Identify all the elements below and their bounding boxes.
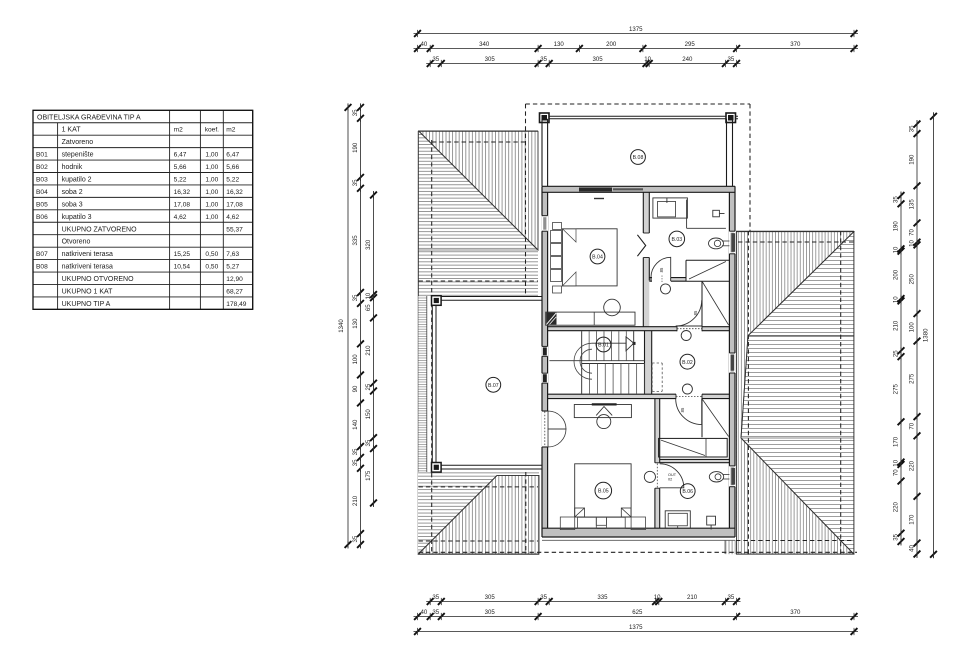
svg-text:40: 40	[908, 545, 915, 552]
svg-text:B08: B08	[36, 264, 48, 271]
svg-text:4,62: 4,62	[226, 214, 239, 221]
svg-text:B.08: B.08	[633, 155, 644, 161]
svg-text:190: 190	[908, 154, 915, 165]
svg-text:10: 10	[654, 594, 661, 601]
svg-text:35: 35	[352, 459, 359, 466]
svg-text:UKUPNO 1 KAT: UKUPNO 1 KAT	[62, 288, 114, 295]
svg-text:B.01: B.01	[598, 343, 609, 349]
svg-text:7,63: 7,63	[226, 251, 239, 258]
svg-text:70: 70	[892, 469, 899, 476]
svg-text:B.03: B.03	[671, 237, 682, 243]
svg-text:35: 35	[540, 56, 547, 63]
svg-text:190: 190	[892, 221, 899, 232]
svg-text:335: 335	[597, 594, 608, 601]
svg-text:1,00: 1,00	[205, 177, 218, 184]
svg-text:1,00: 1,00	[205, 201, 218, 208]
svg-text:35: 35	[432, 594, 439, 601]
svg-text:35: 35	[352, 179, 359, 186]
svg-text:koef.: koef.	[205, 127, 219, 134]
svg-text:1375: 1375	[629, 624, 643, 631]
svg-text:1,00: 1,00	[205, 152, 218, 159]
svg-text:Zatvoreno: Zatvoreno	[62, 139, 94, 146]
svg-text:UKUPNO TIP A: UKUPNO TIP A	[62, 301, 111, 308]
svg-text:16,32: 16,32	[226, 189, 243, 196]
svg-text:17,08: 17,08	[226, 201, 243, 208]
svg-text:m2: m2	[174, 127, 183, 134]
svg-text:m2: m2	[226, 127, 235, 134]
svg-text:1,00: 1,00	[205, 164, 218, 171]
svg-text:UKUPNO ZATVORENO: UKUPNO ZATVORENO	[62, 226, 137, 233]
svg-text:10: 10	[892, 459, 899, 466]
svg-text:275: 275	[892, 384, 899, 395]
svg-text:B.07: B.07	[488, 383, 499, 389]
svg-text:B.02: B.02	[682, 360, 693, 366]
svg-text:90: 90	[352, 385, 359, 392]
svg-text:1 KAT: 1 KAT	[62, 127, 82, 134]
svg-text:305: 305	[485, 594, 496, 601]
svg-text:240: 240	[682, 56, 693, 63]
svg-text:B.05: B.05	[598, 489, 609, 495]
svg-text:40: 40	[420, 41, 427, 48]
svg-text:340: 340	[479, 41, 490, 48]
svg-text:35: 35	[728, 56, 735, 63]
svg-text:1380: 1380	[923, 328, 930, 342]
svg-text:320: 320	[365, 239, 372, 250]
svg-text:40: 40	[420, 609, 427, 616]
svg-text:0,50: 0,50	[205, 251, 218, 258]
svg-text:70: 70	[908, 229, 915, 236]
svg-text:35: 35	[892, 196, 899, 203]
svg-text:02: 02	[668, 478, 672, 482]
svg-text:B03: B03	[36, 177, 48, 184]
svg-text:25: 25	[365, 383, 372, 390]
svg-text:200: 200	[892, 269, 899, 280]
svg-text:soba 3: soba 3	[62, 201, 83, 208]
svg-text:5,22: 5,22	[174, 177, 187, 184]
svg-text:35: 35	[365, 439, 372, 446]
svg-text:220: 220	[908, 460, 915, 471]
svg-text:10: 10	[365, 292, 372, 299]
svg-text:210: 210	[892, 320, 899, 331]
svg-text:130: 130	[352, 318, 359, 329]
svg-text:135: 135	[908, 199, 915, 210]
svg-text:5,27: 5,27	[226, 264, 239, 271]
svg-text:OBITELJSKA GRAĐEVINA TIP A: OBITELJSKA GRAĐEVINA TIP A	[37, 114, 141, 121]
svg-text:Otvoreno: Otvoreno	[62, 239, 91, 246]
svg-text:130: 130	[554, 41, 565, 48]
svg-text:335: 335	[352, 235, 359, 246]
svg-text:370: 370	[790, 609, 801, 616]
svg-text:35: 35	[352, 448, 359, 455]
svg-text:35: 35	[432, 609, 439, 616]
svg-text:10: 10	[892, 246, 899, 253]
svg-text:150: 150	[365, 409, 372, 420]
svg-text:16,32: 16,32	[174, 189, 191, 196]
svg-text:6,47: 6,47	[174, 152, 187, 159]
svg-text:190: 190	[352, 142, 359, 153]
svg-text:stepenište: stepenište	[62, 152, 94, 159]
svg-text:35: 35	[892, 533, 899, 540]
svg-text:B.04: B.04	[592, 255, 603, 261]
svg-text:275: 275	[908, 373, 915, 384]
svg-text:210: 210	[365, 345, 372, 356]
svg-text:UKUPNO OTVORENO: UKUPNO OTVORENO	[62, 276, 135, 283]
svg-text:70: 70	[908, 422, 915, 429]
svg-text:12,90: 12,90	[226, 276, 243, 283]
svg-text:25: 25	[892, 350, 899, 357]
svg-text:1,00: 1,00	[205, 214, 218, 221]
svg-text:natkriveni terasa: natkriveni terasa	[62, 251, 113, 258]
svg-text:175: 175	[365, 470, 372, 481]
svg-text:100: 100	[352, 354, 359, 365]
svg-text:kupatilo 2: kupatilo 2	[62, 177, 92, 184]
svg-text:220: 220	[892, 501, 899, 512]
svg-text:10,54: 10,54	[174, 264, 191, 271]
svg-text:55,37: 55,37	[226, 226, 243, 233]
svg-text:5,22: 5,22	[226, 177, 239, 184]
svg-text:305: 305	[485, 609, 496, 616]
svg-text:35: 35	[540, 594, 547, 601]
svg-text:15,25: 15,25	[174, 251, 191, 258]
svg-text:305: 305	[593, 56, 604, 63]
svg-text:178,49: 178,49	[226, 301, 247, 308]
svg-text:35: 35	[432, 56, 439, 63]
svg-text:6,47: 6,47	[226, 152, 239, 159]
svg-text:B05: B05	[36, 201, 48, 208]
svg-text:B.06: B.06	[682, 489, 693, 495]
svg-text:210: 210	[687, 594, 698, 601]
svg-text:10: 10	[892, 296, 899, 303]
svg-text:295: 295	[685, 41, 696, 48]
svg-text:soba 2: soba 2	[62, 189, 83, 196]
svg-text:natkriveni terasa: natkriveni terasa	[62, 264, 113, 271]
svg-text:35: 35	[728, 594, 735, 601]
svg-text:B01: B01	[36, 152, 48, 159]
svg-text:85: 85	[659, 267, 664, 272]
svg-text:1375: 1375	[629, 26, 643, 33]
svg-text:200: 200	[606, 41, 617, 48]
svg-text:625: 625	[632, 609, 643, 616]
svg-text:1,00: 1,00	[205, 189, 218, 196]
svg-text:140: 140	[352, 419, 359, 430]
svg-text:68,27: 68,27	[226, 288, 243, 295]
svg-text:kupatilo 3: kupatilo 3	[62, 214, 92, 221]
svg-text:B02: B02	[36, 164, 48, 171]
svg-text:250: 250	[908, 274, 915, 285]
svg-text:OUT: OUT	[668, 473, 677, 477]
svg-text:305: 305	[485, 56, 496, 63]
svg-text:100: 100	[908, 322, 915, 333]
svg-text:B07: B07	[36, 251, 48, 258]
svg-text:35: 35	[352, 109, 359, 116]
svg-text:35: 35	[352, 294, 359, 301]
svg-text:170: 170	[892, 436, 899, 447]
svg-text:0,50: 0,50	[205, 264, 218, 271]
svg-text:10: 10	[908, 240, 915, 247]
svg-text:5,66: 5,66	[174, 164, 187, 171]
svg-text:hodnik: hodnik	[62, 164, 83, 171]
svg-text:4,62: 4,62	[174, 214, 187, 221]
svg-text:10: 10	[644, 56, 651, 63]
svg-text:5,66: 5,66	[226, 164, 239, 171]
svg-text:85: 85	[693, 310, 698, 315]
svg-text:B06: B06	[36, 214, 48, 221]
svg-text:170: 170	[908, 514, 915, 525]
svg-text:35: 35	[908, 125, 915, 132]
svg-text:B04: B04	[36, 189, 48, 196]
svg-text:85: 85	[680, 407, 685, 412]
svg-text:370: 370	[790, 41, 801, 48]
svg-text:35: 35	[352, 535, 359, 542]
svg-text:210: 210	[352, 495, 359, 506]
svg-text:17,08: 17,08	[174, 201, 191, 208]
svg-text:1340: 1340	[338, 319, 345, 333]
svg-text:65: 65	[365, 304, 372, 311]
